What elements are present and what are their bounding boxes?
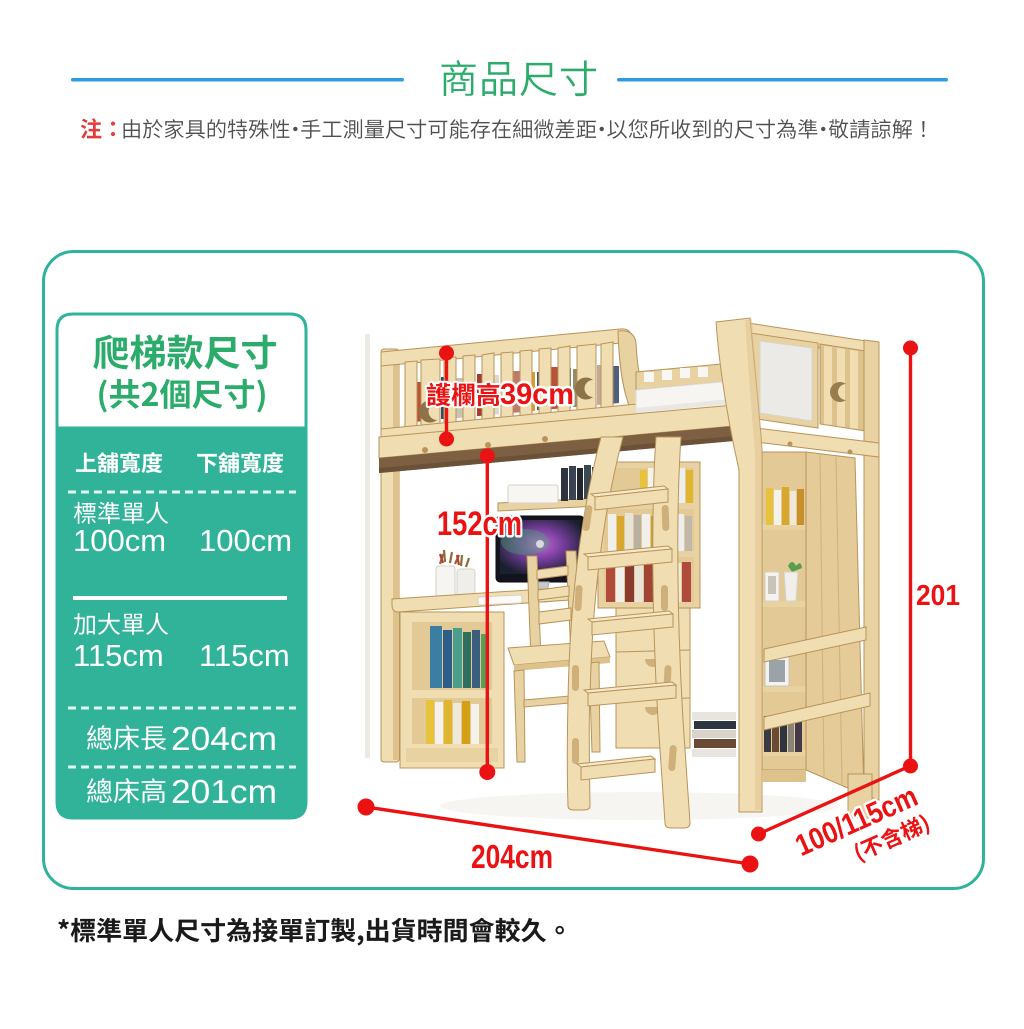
svg-text:115cm: 115cm [73,638,164,673]
svg-text:152cm: 152cm [437,505,522,543]
svg-text:115cm: 115cm [199,638,290,673]
svg-text:39cm: 39cm [500,378,574,411]
svg-text:100cm: 100cm [73,523,166,558]
svg-text:201cm: 201cm [171,773,277,810]
svg-text:204cm: 204cm [171,720,277,757]
svg-text:201: 201 [916,580,960,612]
svg-text:100cm: 100cm [199,523,292,558]
svg-text:204cm: 204cm [471,838,553,875]
